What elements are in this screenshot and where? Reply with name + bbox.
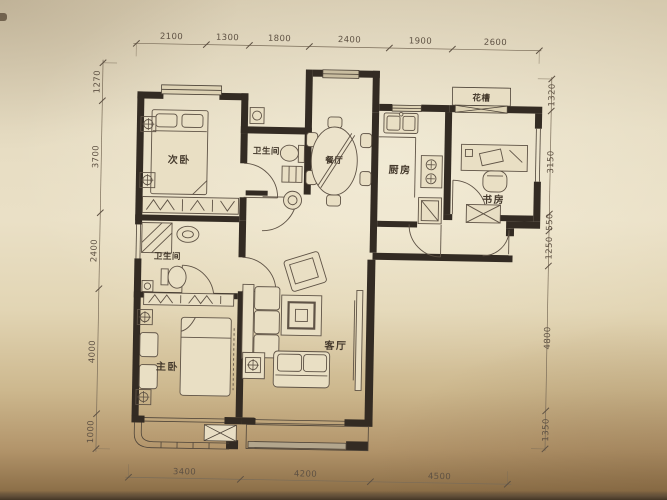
bath-cabinet [282, 166, 302, 182]
dim-label: 1270 [92, 70, 102, 93]
dim-label: 4800 [543, 326, 553, 349]
window-bath-left [136, 224, 141, 258]
dim-label: 3150 [546, 150, 556, 173]
coffee-table [281, 295, 322, 336]
shower-icon [142, 222, 173, 253]
wardrobe-secondary [142, 196, 238, 214]
dim-label: 2600 [484, 38, 507, 48]
photo-edge-artifact [0, 13, 7, 21]
dim-label: 4200 [294, 469, 317, 479]
door-kitchen [409, 224, 442, 257]
tv [353, 290, 363, 390]
room-label-bath-top: 卫生间 [253, 146, 280, 156]
window-kitchen [392, 105, 421, 112]
basin-icon [177, 226, 199, 242]
burner-icon [426, 174, 436, 184]
dim-label: 1300 [216, 33, 239, 43]
dim-label: 1350 [541, 418, 551, 441]
dim-label: 3700 [91, 145, 101, 168]
floor-drain-icon [142, 281, 153, 292]
room-label-dining: 餐厅 [324, 155, 343, 165]
dim-left: 1270 3700 2400 4000 1000 [86, 59, 117, 452]
room-label-bath-left: 卫生间 [154, 251, 181, 261]
loveseat [273, 351, 330, 388]
room-label-kitchen: 厨房 [388, 163, 411, 176]
dim-label: 1320 [547, 83, 557, 106]
window-master-south [144, 418, 224, 423]
floor-plan-photo: 次卧 卫生间 餐厅 厨房 花槽 书房 卫生间 主卧 客厅 2100 1300 1… [0, 0, 667, 500]
room-label-flower-box: 花槽 [472, 93, 490, 103]
dim-top: 2100 1300 1800 2400 1900 2600 [133, 31, 543, 63]
armchair [283, 251, 327, 292]
shaft-x-box [466, 204, 500, 223]
dim-label: 1000 [86, 420, 96, 443]
washing-machine-icon [250, 107, 264, 123]
dim-label: 1800 [268, 34, 291, 44]
dim-label: 2100 [160, 32, 183, 42]
dim-label: 2400 [89, 239, 99, 262]
door-entry [483, 230, 509, 256]
room-label-living: 客厅 [323, 339, 347, 352]
dim-label: 2400 [338, 35, 361, 45]
burner-icon [426, 160, 436, 170]
fridge [418, 198, 441, 224]
bed-master [180, 317, 234, 396]
wardrobe-master [144, 293, 234, 307]
window-study [535, 129, 540, 182]
window-secondary-bedroom [161, 85, 221, 95]
toilet-icon [161, 266, 186, 288]
shaft-x-box [204, 425, 236, 442]
toilet-icon [280, 145, 304, 162]
window-living-south [255, 420, 344, 425]
dim-label: 3400 [173, 467, 196, 477]
office-chair [483, 171, 507, 192]
basin-icon [283, 191, 301, 209]
dim-label: 1250 [544, 236, 554, 259]
bed-secondary [151, 110, 209, 195]
nightstand [139, 332, 158, 388]
dim-bottom: 3400 4200 4500 [125, 464, 511, 487]
room-label-secondary-bedroom: 次卧 [168, 153, 191, 166]
stove [421, 156, 443, 188]
room-label-master-bedroom: 主卧 [156, 360, 179, 373]
dim-label: 550 [545, 213, 555, 231]
dim-label: 1900 [409, 36, 432, 46]
sofa-l [242, 284, 280, 359]
dim-label: 4000 [88, 340, 98, 363]
dim-right: 1320 3150 550 1250 4800 1350 [531, 76, 558, 453]
desk [461, 144, 527, 171]
floor-plan-drawing: 次卧 卫生间 餐厅 厨房 花槽 书房 卫生间 主卧 客厅 2100 1300 1… [0, 0, 667, 500]
window-dining-bay [323, 70, 359, 79]
photo-bottom-shadow [0, 491, 667, 500]
room-label-study: 书房 [482, 193, 505, 206]
dim-label: 4500 [428, 472, 451, 482]
sink-double [384, 112, 418, 133]
